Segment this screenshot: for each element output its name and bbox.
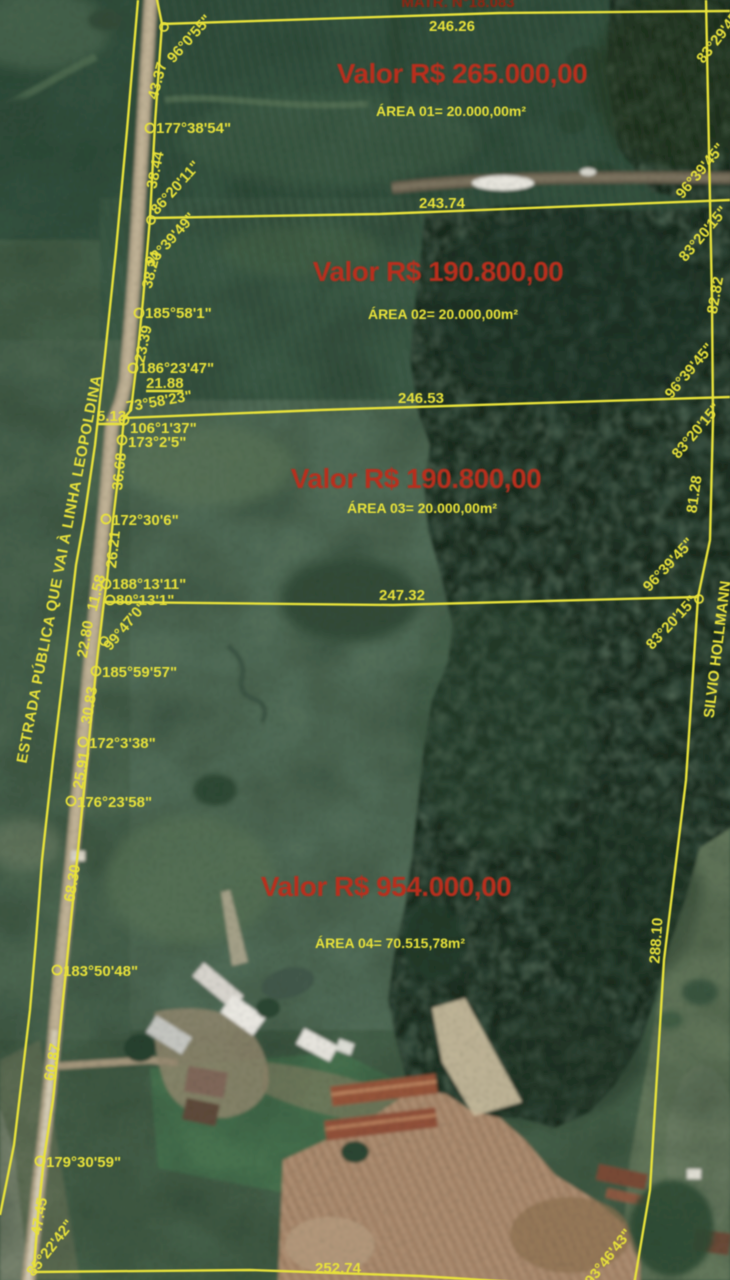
svg-text:5.13: 5.13 (97, 408, 126, 425)
svg-text:243.74: 243.74 (419, 195, 466, 212)
svg-text:179°30'59": 179°30'59" (46, 1154, 121, 1171)
svg-text:ÁREA 02= 20.000,00m²: ÁREA 02= 20.000,00m² (368, 306, 518, 322)
svg-text:Valor R$ 954.000,00: Valor R$ 954.000,00 (261, 871, 511, 902)
svg-text:185°59'57": 185°59'57" (102, 664, 177, 681)
svg-text:Valor R$ 190.800,00: Valor R$ 190.800,00 (313, 256, 563, 287)
svg-text:246.26: 246.26 (429, 18, 475, 35)
svg-text:MATR. N°18.083: MATR. N°18.083 (401, 0, 514, 11)
svg-text:176°23'58": 176°23'58" (77, 794, 152, 811)
svg-text:183°50'48": 183°50'48" (63, 963, 138, 980)
svg-text:252.74: 252.74 (315, 1260, 362, 1277)
svg-text:173°2'5": 173°2'5" (128, 434, 186, 451)
svg-text:ÁREA 03= 20.000,00m²: ÁREA 03= 20.000,00m² (347, 500, 497, 516)
svg-text:172°30'6": 172°30'6" (112, 512, 179, 529)
svg-text:247.32: 247.32 (379, 587, 425, 604)
svg-text:Valor R$ 265.000,00: Valor R$ 265.000,00 (337, 58, 587, 89)
svg-text:177°38'54": 177°38'54" (156, 120, 231, 137)
svg-text:ÁREA 01= 20.000,00m²: ÁREA 01= 20.000,00m² (376, 103, 526, 119)
svg-text:172°3'38": 172°3'38" (89, 735, 156, 752)
svg-text:188°13'11": 188°13'11" (112, 576, 186, 593)
svg-text:185°58'1": 185°58'1" (145, 305, 212, 322)
svg-text:288.10: 288.10 (646, 917, 666, 964)
svg-text:ÁREA 04= 70.515,78m²: ÁREA 04= 70.515,78m² (315, 935, 465, 951)
svg-text:246.53: 246.53 (398, 390, 444, 407)
svg-text:Valor R$ 190.800,00: Valor R$ 190.800,00 (291, 463, 541, 494)
